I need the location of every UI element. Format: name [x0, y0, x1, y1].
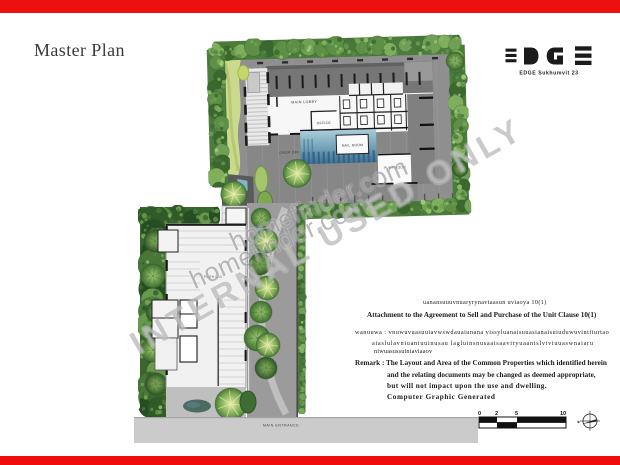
svg-text:0: 0 [478, 411, 481, 417]
svg-text:2: 2 [495, 411, 498, 417]
svg-text:10: 10 [560, 411, 566, 417]
svg-text:5: 5 [515, 411, 518, 417]
